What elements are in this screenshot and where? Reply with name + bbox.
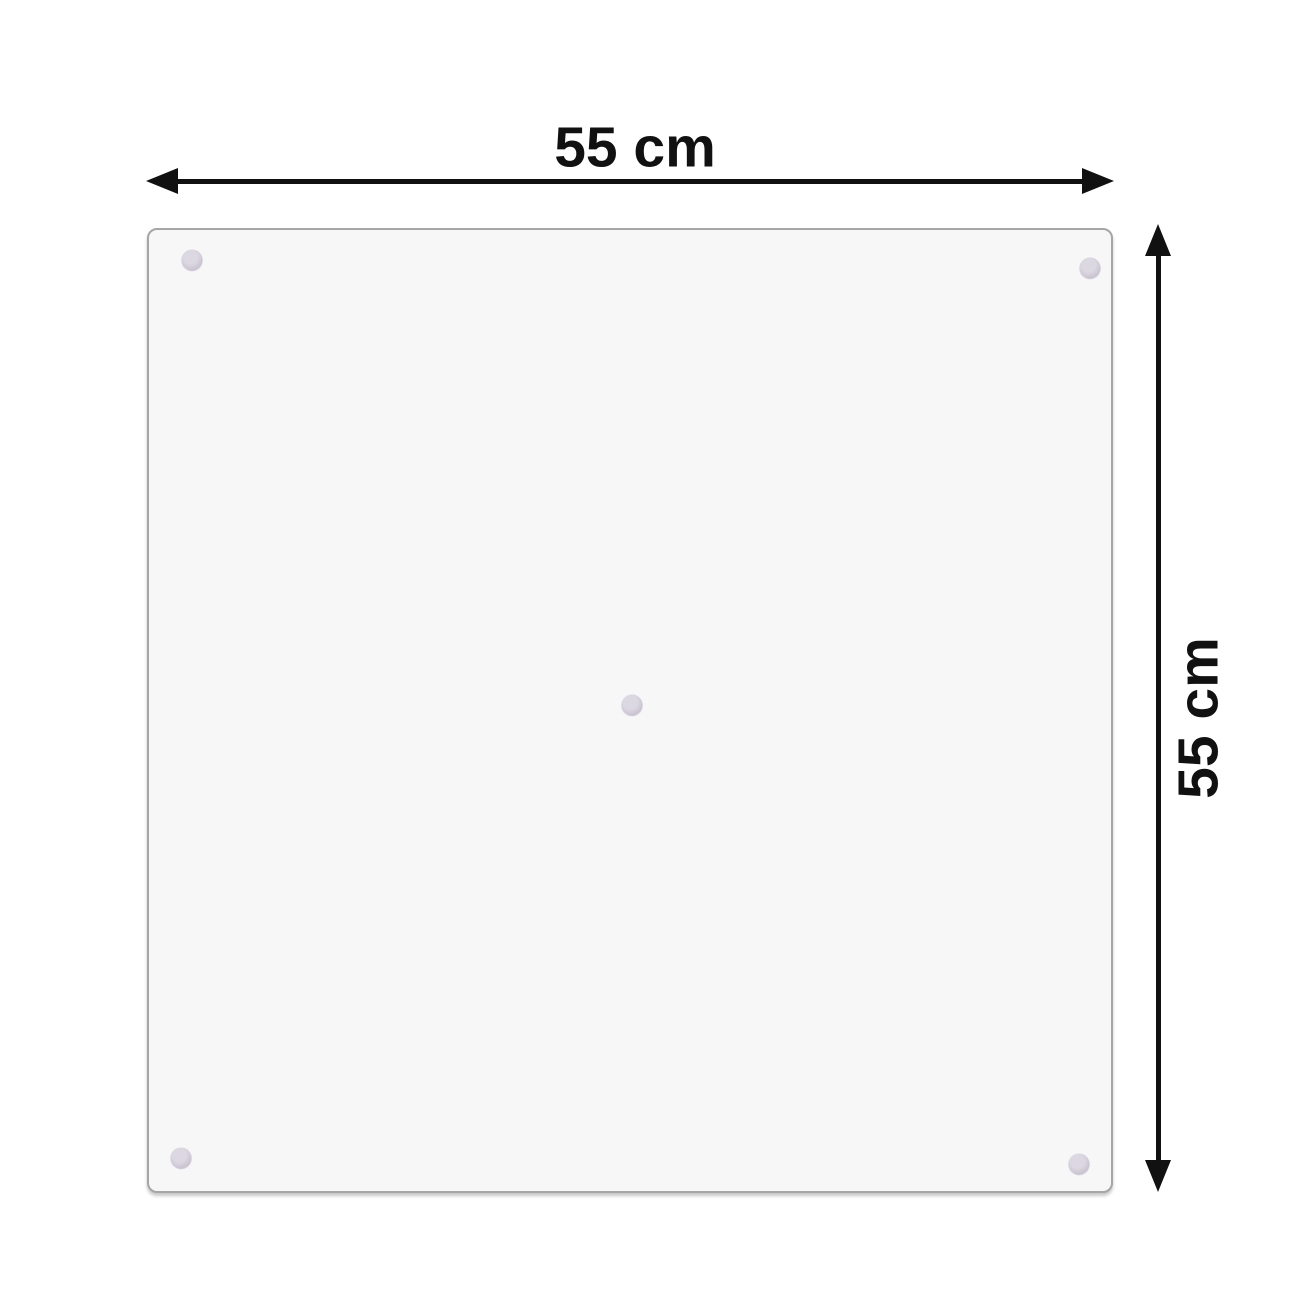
width-dimension-arrow: [146, 168, 1114, 194]
arrow-right-head-icon: [1082, 168, 1114, 194]
suction-cup-top-left: [182, 250, 203, 271]
suction-cup-center: [622, 695, 643, 716]
suction-cup-top-right: [1080, 258, 1101, 279]
arrow-shaft: [1156, 248, 1161, 1168]
product-dimension-diagram: 55 cm 55 cm: [0, 0, 1300, 1300]
suction-cup-bottom-left: [171, 1148, 192, 1169]
glass-panel: [147, 228, 1113, 1193]
suction-cup-bottom-right: [1069, 1154, 1090, 1175]
arrow-shaft: [170, 179, 1090, 184]
height-dimension-label: 55 cm: [1171, 637, 1228, 799]
arrow-down-head-icon: [1145, 1160, 1171, 1192]
